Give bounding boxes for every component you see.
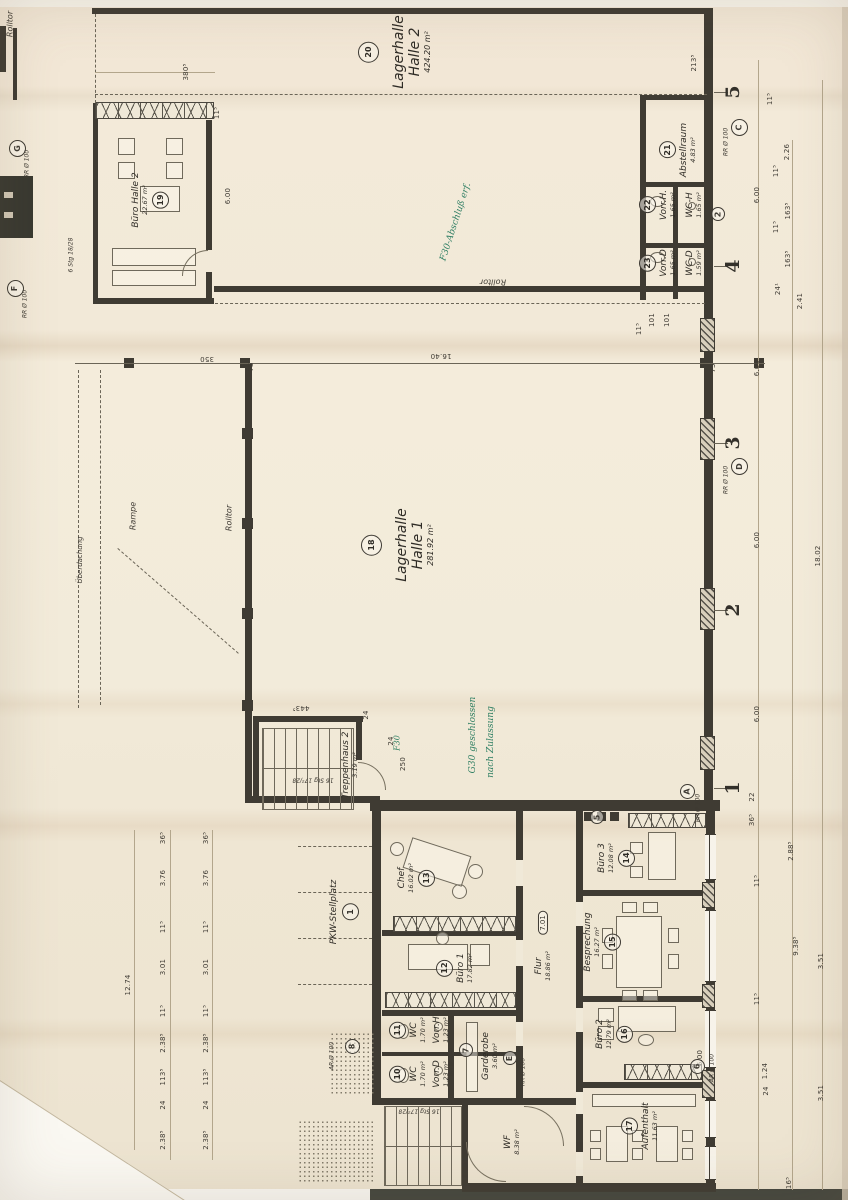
dimension-label: 36⁵	[159, 832, 167, 844]
room-area: 1.23 m²	[442, 1017, 450, 1042]
door-gap	[576, 1152, 583, 1176]
furniture	[643, 902, 658, 913]
room-label-vorr-h: Vorr.H1.23 m²	[432, 1016, 450, 1043]
dimension-label: 24	[362, 710, 370, 719]
plan-label: RR Ø 100	[696, 794, 703, 822]
room-name: WF	[503, 1135, 513, 1149]
door-gap	[516, 940, 523, 966]
hatched-wall-pier	[702, 984, 715, 1008]
room-area: 1.59 m²	[695, 250, 703, 275]
room-label-text: Besprechung16.27 m²	[583, 912, 601, 971]
dashed-line	[215, 303, 705, 304]
dimension-label: 6.00	[753, 706, 761, 722]
room-label-text: Aufenthalt11.63 m²	[641, 1102, 659, 1149]
wall	[242, 518, 253, 529]
grid-axis-number: 1	[722, 781, 744, 794]
circled-mark-A: A	[680, 784, 695, 799]
dimension-label: 11⁵	[772, 221, 780, 233]
dimension-label: 1.24	[761, 1063, 769, 1079]
door-gap	[516, 1022, 523, 1046]
room-label-abstellraum: 21Abstellraum4.83 m²	[659, 123, 697, 177]
circled-mark-G: G	[9, 140, 26, 157]
room-area: 17.82 m²	[466, 953, 474, 983]
room-area: 1.65 m²	[669, 250, 677, 275]
circled-mark-text: C	[735, 124, 744, 130]
room-name: Büro Halle 2	[131, 172, 141, 227]
circled-mark-C: C	[731, 119, 748, 136]
dimension-label: 11⁵	[202, 921, 210, 933]
room-label-text: WF8.38 m²	[503, 1129, 521, 1154]
hatched-wall-pier	[700, 736, 715, 770]
dimension-label: 11⁵	[753, 993, 761, 1005]
room-name: Chef	[397, 868, 407, 889]
room-name: WC	[409, 1066, 419, 1081]
furniture	[643, 990, 658, 1001]
room-area: 281.92 m²	[426, 524, 435, 566]
circled-mark-5: 5	[590, 810, 604, 824]
line	[75, 363, 765, 364]
room-number: 22	[643, 199, 652, 210]
circled-mark-text: 6	[692, 1063, 701, 1069]
room-label-text: Büro 212.79 m²	[595, 1019, 613, 1049]
furniture	[590, 1148, 601, 1160]
dimension-label: 2.38⁵	[159, 1130, 167, 1149]
dimension-label: 75	[247, 362, 255, 371]
door-arc	[466, 1142, 506, 1182]
dimension-label: 163⁵	[784, 251, 792, 268]
green-annotation: nach Zulassung	[486, 706, 496, 778]
room-name: Abstellraum	[679, 123, 689, 177]
circled-mark-text: A	[682, 788, 691, 794]
window	[705, 1146, 716, 1180]
scan-edge-mark	[13, 28, 17, 100]
furniture-round	[468, 864, 483, 879]
room-name-line2: Halle 2	[407, 28, 423, 77]
dashed-line	[298, 984, 372, 985]
plan-label: RR Ø 100	[25, 150, 32, 178]
window	[705, 910, 716, 982]
furniture	[622, 990, 637, 1001]
room-name: Besprechung	[583, 912, 593, 971]
room-name: Vorr.D	[432, 1060, 442, 1088]
dimension-label: 2.38⁵	[202, 1033, 210, 1052]
dimension-label: 250	[399, 757, 407, 771]
room-name: Büro 3	[597, 843, 607, 873]
room-label-text: WC1.70 m²	[409, 1017, 427, 1042]
door-gap	[576, 902, 583, 926]
wall	[242, 700, 253, 711]
furniture	[112, 248, 196, 266]
room-number: 10	[393, 1068, 402, 1079]
room-number-circle: 22	[639, 197, 656, 214]
wall	[704, 303, 713, 803]
room-number-circle: 15	[604, 934, 621, 951]
stipple-ground	[298, 1120, 376, 1182]
grid-axis-number: 4	[722, 259, 744, 272]
furniture	[466, 1022, 478, 1092]
room-label-wc: 10WC1.70 m²	[389, 1061, 427, 1086]
room-area: 1.23 m²	[442, 1061, 450, 1086]
room-label-lagerhalle: 18LagerhalleHalle 1281.92 m²	[361, 508, 435, 581]
circled-mark-E: E	[503, 1051, 517, 1065]
room-name: Büro 2	[595, 1019, 605, 1049]
room-number: 16	[620, 1028, 629, 1039]
dimension-label: 11⁵	[772, 165, 780, 177]
circled-mark-7: 7	[459, 1043, 473, 1057]
furniture	[118, 138, 135, 155]
wall	[92, 8, 710, 14]
room-number-circle: 21	[659, 142, 676, 159]
room-number-circle: 10	[389, 1066, 406, 1083]
room-number-circle: 13	[418, 870, 435, 887]
room-label-lagerhalle: 20LagerhalleHalle 2424.20 m²	[358, 15, 432, 88]
room-name: WC	[409, 1022, 419, 1037]
dimension-label: 36⁵	[202, 832, 210, 844]
scan-dark-patch-dot	[4, 212, 13, 218]
room-label-text: Vorr.D1.65 m²	[659, 249, 677, 277]
circled-mark-F: F	[7, 280, 24, 297]
dimension-label: 12.74	[124, 974, 132, 995]
dashed-line-vertical	[100, 370, 101, 705]
room-label-vorr-d: 23Vorr.D1.65 m²	[639, 249, 677, 277]
furniture	[682, 1148, 693, 1160]
room-number: 21	[663, 144, 672, 155]
window	[705, 1100, 716, 1138]
wall	[253, 722, 259, 802]
wall	[704, 8, 713, 303]
room-label-garderobe: Garderobe3.60 m²	[481, 1032, 499, 1080]
dimension-label: 6.00	[224, 188, 232, 204]
diagonal-dashed-line	[117, 548, 238, 654]
dimension-label: 11⁵	[159, 1005, 167, 1017]
furniture	[622, 902, 637, 913]
window-band	[385, 992, 516, 1008]
room-label-flur: Flur18.86 m²	[534, 951, 552, 981]
dimension-label: 18.02	[814, 545, 822, 566]
room-number-circle: 12	[436, 960, 453, 977]
door-gap	[576, 1092, 583, 1114]
room-number: 19	[156, 194, 165, 205]
plan-label: RR Ø 100	[724, 128, 731, 156]
dimension-label: 11⁵	[159, 921, 167, 933]
plan-label: Rampe	[128, 502, 137, 530]
room-label-text: Treppenhaus 23.19 m²	[341, 732, 359, 799]
room-label-besprechung: Besprechung16.27 m²15	[583, 912, 621, 971]
room-area: 3.19 m²	[351, 752, 359, 777]
dimension-label: 2.26	[783, 144, 791, 160]
circled-mark-text: 5	[592, 814, 601, 820]
dimension-label: 22	[748, 792, 756, 801]
room-area: 4.83 m²	[689, 137, 697, 162]
room-area: 11.63 m²	[651, 1111, 659, 1141]
room-number-circle: 20	[358, 42, 379, 63]
door-arc	[358, 762, 386, 790]
room-number-badge: 7.01	[538, 911, 548, 935]
wall	[206, 272, 212, 304]
room-area: 16.27 m²	[593, 927, 601, 957]
plan-label: Rolltor	[5, 11, 14, 37]
wall	[214, 286, 706, 292]
room-number: 18	[367, 539, 376, 550]
dimension-label: 443⁵	[293, 704, 310, 712]
circled-mark-6: 6	[690, 1059, 705, 1074]
wall	[206, 120, 212, 250]
wall	[242, 608, 253, 619]
room-label-text: Büro 117.82 m²	[456, 953, 474, 983]
room-area: 1.65 m²	[695, 192, 703, 217]
dimension-label: 3.51	[817, 953, 825, 969]
dimension-line	[170, 830, 171, 1160]
dimension-label: 3.51	[817, 1085, 825, 1101]
room-name: WC-H	[685, 192, 695, 217]
room-number-circle: 1	[342, 904, 359, 921]
hatched-wall-pier	[700, 318, 715, 352]
plan-label: Rolltor	[480, 277, 506, 286]
hatched-wall-pier	[702, 882, 715, 908]
dimension-label: 6.00	[753, 360, 761, 376]
plan-label: 16 Stg 17²/28	[292, 776, 333, 783]
room-name: WC-D	[685, 250, 695, 275]
furniture	[166, 138, 183, 155]
plan-label: Rolltor	[224, 505, 233, 531]
dimension-label: 6.00	[753, 532, 761, 548]
furniture	[682, 1130, 693, 1142]
dimension-label: 9.38⁵	[792, 936, 800, 955]
dimension-label: 113⁵	[159, 1069, 167, 1086]
wall	[242, 428, 253, 439]
room-label-pkw-stellplatz: PKW-Stellplatz1	[329, 880, 359, 945]
room-name: Garderobe	[481, 1032, 491, 1080]
room-label-text: Garderobe3.60 m²	[481, 1032, 499, 1080]
room-area: 22.67 m²	[141, 185, 149, 215]
room-area: 1.70 m²	[419, 1017, 427, 1042]
room-name: Vorr.D	[659, 249, 669, 277]
room-name: Lagerhalle	[391, 15, 407, 88]
room-label-treppenhaus-2: Treppenhaus 23.19 m²	[341, 732, 359, 799]
dimension-label: 3.76	[202, 870, 210, 886]
dimension-label: 213⁵	[690, 55, 698, 72]
room-name: Lagerhalle	[394, 508, 410, 581]
scan-dark-patch-dot	[4, 192, 13, 198]
room-name-line2: Halle 1	[410, 521, 426, 570]
plan-label: RR Ø 100	[724, 466, 731, 494]
circled-mark-8: 8	[345, 1039, 360, 1054]
wall	[370, 800, 720, 811]
room-label-text: WC-D1.59 m²	[685, 250, 703, 275]
room-label-vorr-d: Vorr.D1.23 m²	[432, 1060, 450, 1088]
furniture	[648, 832, 676, 880]
dimension-line	[134, 830, 135, 1150]
room-number-circle: 18	[361, 535, 382, 556]
wall	[610, 812, 619, 821]
room-number-circle: 16	[616, 1026, 633, 1043]
room-label-text: Büro Halle 222.67 m²	[131, 172, 149, 227]
room-label-text: Vorr.H1.23 m²	[432, 1016, 450, 1043]
circled-mark-text: D	[734, 463, 743, 470]
dimension-label: 11⁵	[766, 93, 774, 105]
room-number: 13	[422, 872, 431, 883]
room-label-büro-1: 12Büro 117.82 m²	[436, 953, 474, 983]
door-arc	[524, 1106, 564, 1146]
room-label-text: LagerhalleHalle 2424.20 m²	[391, 15, 432, 88]
room-number: 17	[625, 1120, 634, 1131]
room-area: 16.02 m²	[407, 863, 415, 893]
wall	[582, 890, 706, 896]
room-number-circle: 19	[152, 192, 169, 209]
room-label-wc-h: WC-H1.65 m²	[685, 192, 703, 217]
plan-label: AR Ø 100	[710, 1054, 717, 1082]
room-label-chef: Chef16.02 m²13	[397, 863, 435, 893]
room-label-text: Abstellraum4.83 m²	[679, 123, 697, 177]
window	[705, 834, 716, 880]
room-label-text: WC-H1.65 m²	[685, 192, 703, 217]
furniture-round	[436, 932, 449, 945]
plan-label: AR Ø 100	[330, 1042, 337, 1070]
dimension-label: 36⁵	[748, 814, 756, 826]
room-area: 3.60 m²	[491, 1043, 499, 1068]
plan-label: 16 Stg 17²/28	[398, 1107, 439, 1114]
floor-plan-scan: 380⁵11⁵6.00213⁵11⁵2.2611⁵6.00163⁵11⁵163⁵…	[0, 0, 848, 1200]
room-area: 12.79 m²	[605, 1019, 613, 1049]
dimension-label: 6.00	[753, 187, 761, 203]
room-name: Flur	[534, 957, 544, 974]
dashed-line	[298, 846, 372, 847]
plan-label: 6 Stg 18/28	[69, 238, 76, 273]
room-number: 12	[440, 962, 449, 973]
dimension-label: 11⁵	[213, 107, 221, 119]
room-name: PKW-Stellplatz	[329, 880, 339, 945]
dimension-label: 101	[663, 313, 671, 327]
dimension-label: 75	[709, 363, 717, 372]
room-area: 8.38 m²	[513, 1129, 521, 1154]
dimension-label: 24	[762, 1086, 770, 1095]
room-label-aufenthalt: 17Aufenthalt11.63 m²	[621, 1102, 659, 1149]
dimension-label: 3.01	[159, 959, 167, 975]
furniture	[590, 1130, 601, 1142]
circled-mark-text: 7	[461, 1047, 470, 1053]
dimension-label: 2.38⁵	[202, 1130, 210, 1149]
room-name: Vorr.H.	[659, 190, 669, 220]
circled-mark-text: F	[11, 285, 20, 290]
room-area: 12.08 m²	[607, 843, 615, 873]
room-label-wf: WF8.38 m²	[503, 1129, 521, 1154]
room-label-wc-d: WC-D1.59 m²	[685, 250, 703, 275]
dimension-line	[822, 80, 823, 1190]
furniture	[616, 916, 662, 988]
wall	[253, 716, 363, 722]
dashed-line-vertical	[95, 14, 96, 103]
circled-mark-text: E	[506, 1055, 515, 1060]
dimension-label: 11⁵	[202, 1005, 210, 1017]
dashed-line	[95, 94, 707, 95]
green-annotation: F30	[392, 735, 401, 751]
dimension-label: 11⁵	[753, 875, 761, 887]
room-label-text: LagerhalleHalle 1281.92 m²	[394, 508, 435, 581]
dimension-label: 163⁵	[784, 203, 792, 220]
wall	[372, 1098, 577, 1105]
hatched-wall-pier	[700, 418, 715, 460]
room-name: Aufenthalt	[641, 1102, 651, 1149]
room-number: 15	[608, 936, 617, 947]
room-area: 1.65 m²	[669, 192, 677, 217]
room-name: Treppenhaus 2	[341, 732, 351, 799]
dimension-label: 24	[202, 1100, 210, 1109]
grid-axis-number: 2	[722, 603, 744, 616]
dimension-line	[758, 60, 759, 1190]
dimension-label: 24¹	[774, 283, 782, 295]
room-number: 14	[622, 852, 631, 863]
circled-mark-text: 8	[347, 1043, 356, 1049]
dimension-label: 24	[159, 1100, 167, 1109]
line	[384, 1146, 462, 1147]
room-label-text: Flur18.86 m²	[534, 951, 552, 981]
room-number: 23	[643, 257, 652, 268]
dimension-label: 2.88⁵	[787, 841, 795, 860]
dimension-label: 16.40	[430, 352, 451, 360]
scan-dark-patch	[0, 176, 33, 238]
room-number-circle: 23	[639, 255, 656, 272]
dimension-label: 380⁵	[182, 64, 190, 81]
room-number-circle: 14	[618, 850, 635, 867]
dimension-line	[212, 830, 213, 1160]
wall	[462, 1183, 716, 1192]
dimension-label: 3.01	[202, 959, 210, 975]
room-label-text: Vorr.H.1.65 m²	[659, 190, 677, 220]
room-area: 424.20 m²	[423, 31, 432, 73]
dimension-label: 3.76	[159, 870, 167, 886]
scan-right-edge-strip	[842, 0, 848, 1200]
room-label-büro-3: Büro 312.08 m²14	[597, 843, 635, 873]
furniture	[668, 954, 679, 969]
wall	[640, 95, 712, 100]
room-name: Vorr.H	[432, 1016, 442, 1043]
room-label-wc: 11WC1.70 m²	[389, 1017, 427, 1042]
furniture	[668, 928, 679, 943]
room-number-circle: 11	[389, 1022, 406, 1039]
furniture	[632, 1148, 643, 1160]
room-label-text: Vorr.D1.23 m²	[432, 1060, 450, 1088]
room-number-circle: 17	[621, 1118, 638, 1135]
room-label-büro-2: Büro 212.79 m²16	[595, 1019, 633, 1049]
room-label-text: WC1.70 m²	[409, 1061, 427, 1086]
dimension-label: 2.38⁵	[159, 1033, 167, 1052]
furniture-round	[638, 1034, 654, 1046]
wall	[93, 103, 98, 304]
dimension-label: 113⁵	[202, 1069, 210, 1086]
wall	[582, 1082, 706, 1088]
circled-mark-text: 2	[713, 211, 722, 217]
plan-label: RR Ø 100	[23, 290, 30, 318]
circled-mark-2: 2	[711, 207, 725, 221]
door-gap	[516, 860, 523, 886]
room-number: 1	[346, 909, 355, 915]
furniture	[656, 1126, 678, 1162]
dimension-line	[95, 72, 215, 73]
green-annotation: G30 geschlossen	[468, 697, 478, 774]
grid-axis-number: 3	[722, 436, 744, 449]
dimension-line	[792, 140, 793, 1190]
dimension-label: 11⁵	[635, 323, 643, 335]
grid-axis-number: 5	[722, 85, 744, 98]
wall	[93, 298, 214, 304]
room-label-text: PKW-Stellplatz	[329, 880, 339, 945]
scan-top-white-strip	[0, 0, 848, 7]
room-name: Büro 1	[456, 953, 466, 983]
dimension-label: 16⁵	[785, 1177, 793, 1189]
furniture-round	[390, 842, 404, 856]
room-area: 1.70 m²	[419, 1061, 427, 1086]
window-band	[95, 102, 214, 119]
